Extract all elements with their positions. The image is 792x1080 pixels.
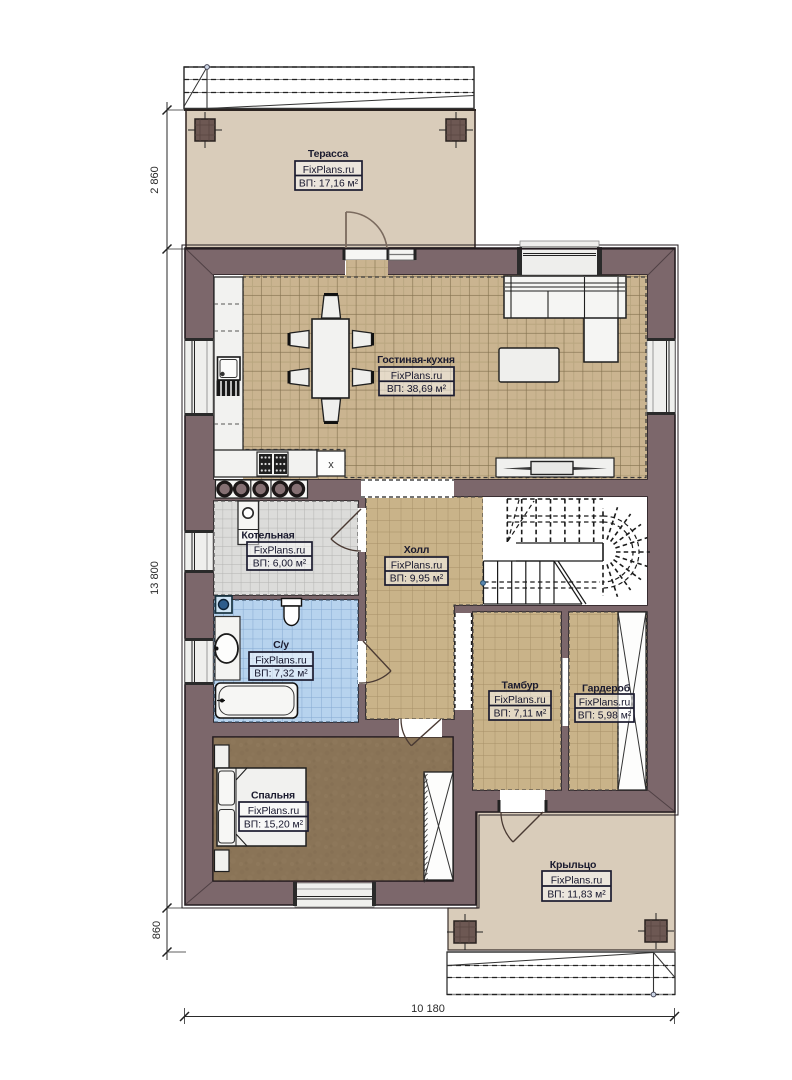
svg-text:ВП: 38,69 м²: ВП: 38,69 м²	[387, 384, 447, 395]
svg-text:FixPlans.ru: FixPlans.ru	[391, 371, 443, 382]
svg-text:ВП: 5,98 м²: ВП: 5,98 м²	[578, 711, 632, 722]
svg-text:Гостиная-кухня: Гостиная-кухня	[377, 354, 455, 366]
svg-text:FixPlans.ru: FixPlans.ru	[248, 806, 300, 817]
svg-text:ВП: 9,95 м²: ВП: 9,95 м²	[390, 574, 444, 585]
svg-text:860: 860	[151, 921, 163, 939]
svg-text:ВП: 15,20 м²: ВП: 15,20 м²	[244, 820, 304, 831]
svg-text:FixPlans.ru: FixPlans.ru	[494, 695, 546, 706]
svg-text:FixPlans.ru: FixPlans.ru	[303, 165, 355, 176]
svg-text:ВП: 6,00 м²: ВП: 6,00 м²	[253, 559, 307, 570]
svg-text:13 800: 13 800	[149, 561, 161, 595]
svg-text:Холл: Холл	[404, 544, 430, 556]
svg-text:x: x	[328, 459, 334, 471]
svg-text:ВП: 17,16 м²: ВП: 17,16 м²	[299, 179, 359, 190]
svg-text:ВП: 11,83 м²: ВП: 11,83 м²	[547, 890, 606, 901]
svg-text:FixPlans.ru: FixPlans.ru	[391, 561, 443, 572]
svg-text:FixPlans.ru: FixPlans.ru	[254, 546, 306, 557]
svg-text:2 860: 2 860	[149, 166, 161, 194]
svg-text:Тамбур: Тамбур	[502, 680, 539, 692]
svg-text:10 180: 10 180	[411, 1003, 445, 1015]
svg-text:Крыльцо: Крыльцо	[550, 859, 596, 871]
svg-text:ВП: 7,11 м²: ВП: 7,11 м²	[494, 709, 547, 720]
svg-text:Котельная: Котельная	[241, 530, 294, 542]
svg-text:FixPlans.ru: FixPlans.ru	[579, 698, 631, 709]
svg-text:Терасса: Терасса	[308, 148, 349, 160]
svg-text:FixPlans.ru: FixPlans.ru	[255, 656, 307, 667]
svg-text:Спальня: Спальня	[251, 790, 295, 802]
svg-text:FixPlans.ru: FixPlans.ru	[551, 876, 603, 887]
svg-text:Гардероб: Гардероб	[582, 683, 631, 695]
svg-text:С/у: С/у	[273, 639, 289, 651]
svg-text:ВП: 7,32 м²: ВП: 7,32 м²	[254, 669, 308, 680]
